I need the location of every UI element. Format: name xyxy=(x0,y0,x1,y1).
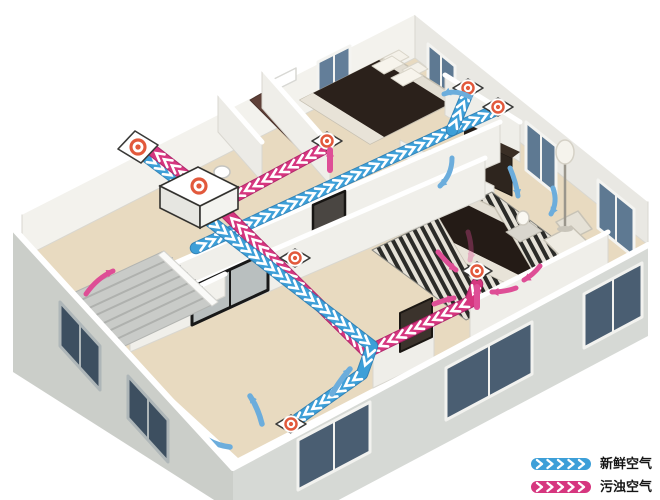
stale-air-duct-icon xyxy=(530,480,592,494)
table-lamp xyxy=(517,211,529,225)
fresh-air-duct-icon xyxy=(530,457,592,471)
stale-air-flow-arrow-faint xyxy=(468,232,471,260)
legend: 新鲜空气 污浊空气 xyxy=(530,457,652,494)
floor-lamp-shade xyxy=(556,140,574,164)
legend-row-fresh-air: 新鲜空气 xyxy=(530,457,652,471)
legend-label-fresh-air: 新鲜空气 xyxy=(600,458,652,471)
legend-label-stale-air: 污浊空气 xyxy=(600,481,652,494)
legend-row-stale-air: 污浊空气 xyxy=(530,480,652,494)
ventilation-diagram: 新鲜空气 污浊空气 xyxy=(0,0,660,500)
floor-lamp-base xyxy=(557,226,573,232)
floorplan-illustration xyxy=(0,0,660,500)
